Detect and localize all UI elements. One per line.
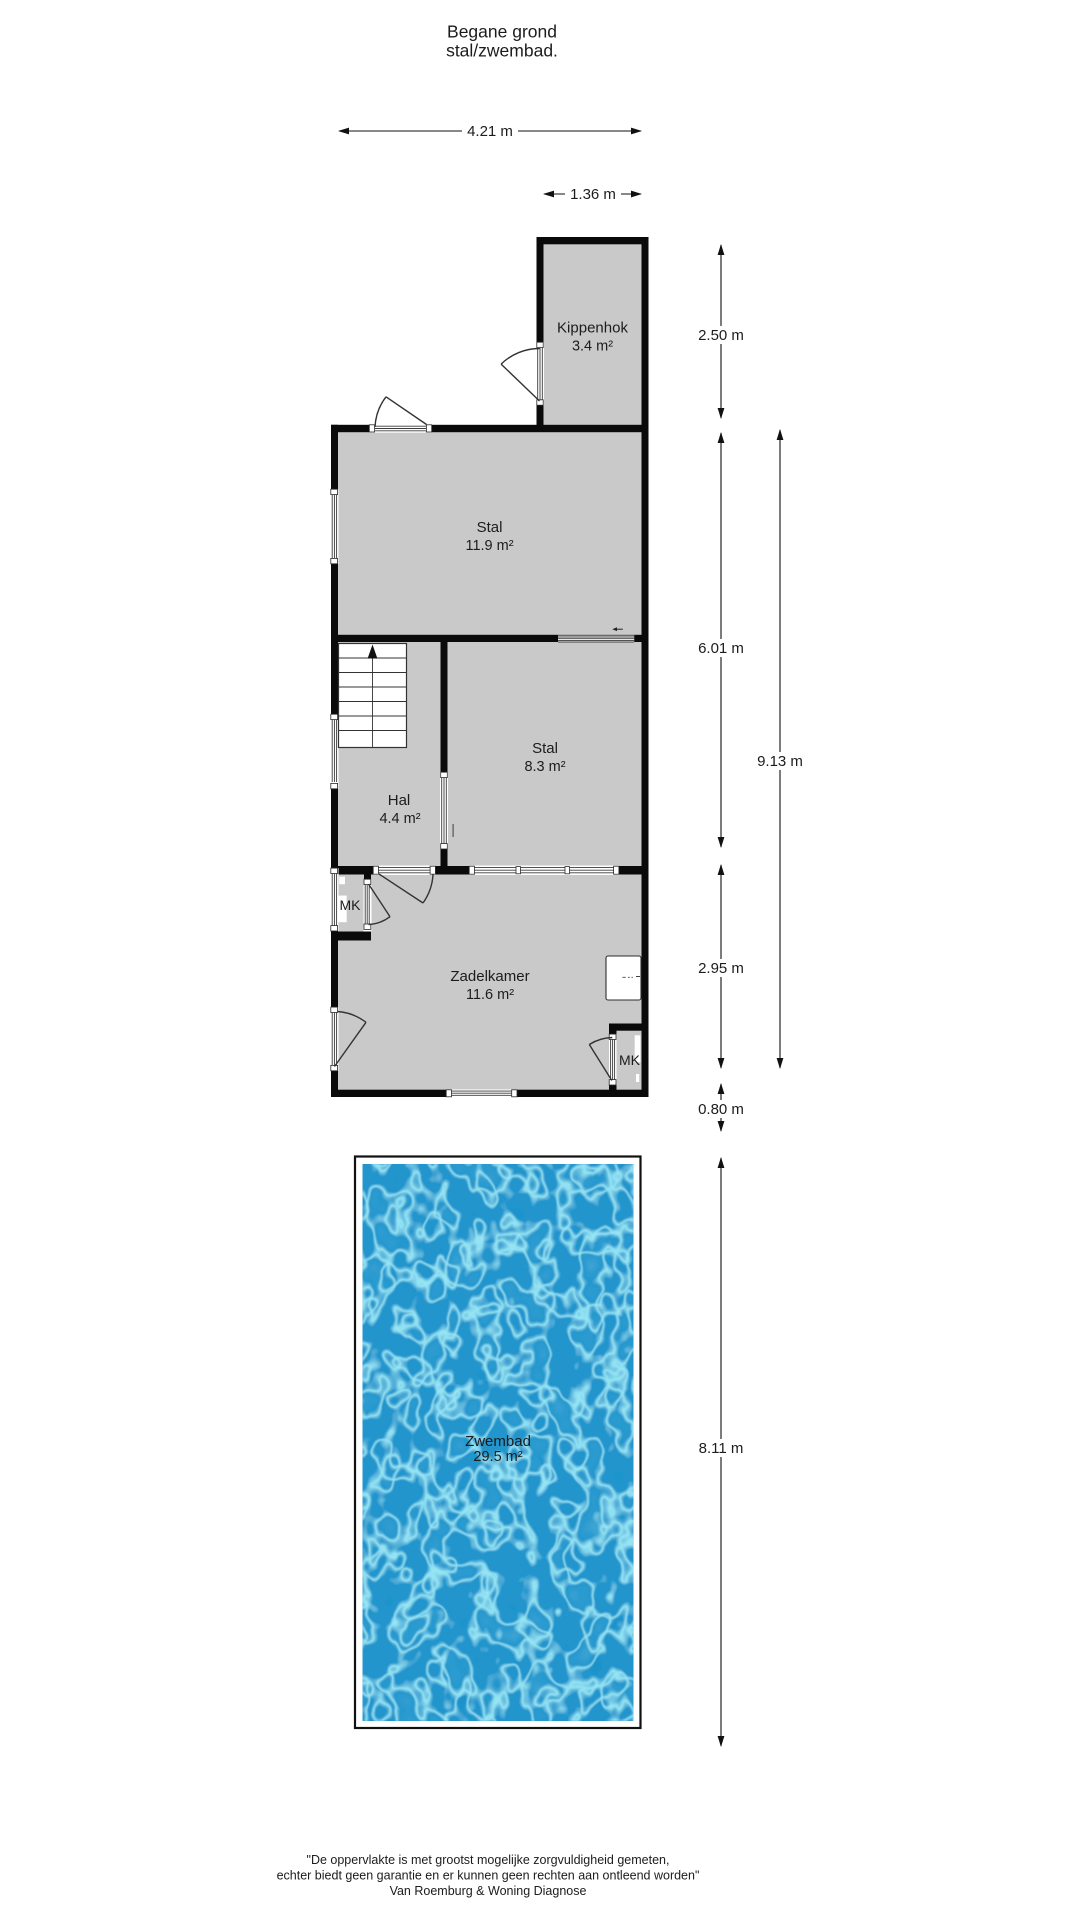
svg-text:11.6 m²: 11.6 m² bbox=[466, 987, 514, 1003]
svg-text:2.50 m: 2.50 m bbox=[698, 327, 744, 344]
svg-text:1.36 m: 1.36 m bbox=[570, 186, 616, 203]
svg-text:6.01 m: 6.01 m bbox=[698, 640, 744, 657]
svg-text:Stal: Stal bbox=[477, 519, 503, 536]
svg-text:0.80 m: 0.80 m bbox=[698, 1101, 744, 1118]
svg-text:Van Roemburg & Woning Diagnose: Van Roemburg & Woning Diagnose bbox=[390, 1884, 587, 1898]
svg-text:Kippenhok: Kippenhok bbox=[557, 320, 628, 337]
svg-text:Zadelkamer: Zadelkamer bbox=[450, 968, 529, 985]
svg-text:Stal: Stal bbox=[532, 740, 558, 757]
svg-text:echter biedt geen garantie en: echter biedt geen garantie en er kunnen … bbox=[277, 1869, 700, 1883]
svg-text:MK: MK bbox=[340, 897, 362, 913]
svg-text:Begane grond: Begane grond bbox=[447, 22, 557, 42]
svg-text:2.95 m: 2.95 m bbox=[698, 960, 744, 977]
svg-text:29.5 m²: 29.5 m² bbox=[473, 1449, 522, 1465]
svg-text:8.3 m²: 8.3 m² bbox=[524, 759, 565, 775]
svg-text:MK: MK bbox=[619, 1052, 641, 1068]
svg-text:Hal: Hal bbox=[388, 792, 411, 809]
svg-text:8.11 m: 8.11 m bbox=[699, 1440, 744, 1457]
svg-text:9.13 m: 9.13 m bbox=[757, 753, 803, 770]
svg-text:Zwembad: Zwembad bbox=[465, 1433, 531, 1450]
svg-text:11.9 m²: 11.9 m² bbox=[465, 538, 513, 554]
svg-text:stal/zwembad.: stal/zwembad. bbox=[446, 41, 558, 61]
svg-text:4.21 m: 4.21 m bbox=[467, 123, 513, 140]
svg-text:"De oppervlakte is met grootst: "De oppervlakte is met grootst mogelijke… bbox=[307, 1853, 670, 1867]
svg-text:3.4 m²: 3.4 m² bbox=[572, 339, 613, 355]
svg-text:4.4 m²: 4.4 m² bbox=[379, 811, 420, 827]
